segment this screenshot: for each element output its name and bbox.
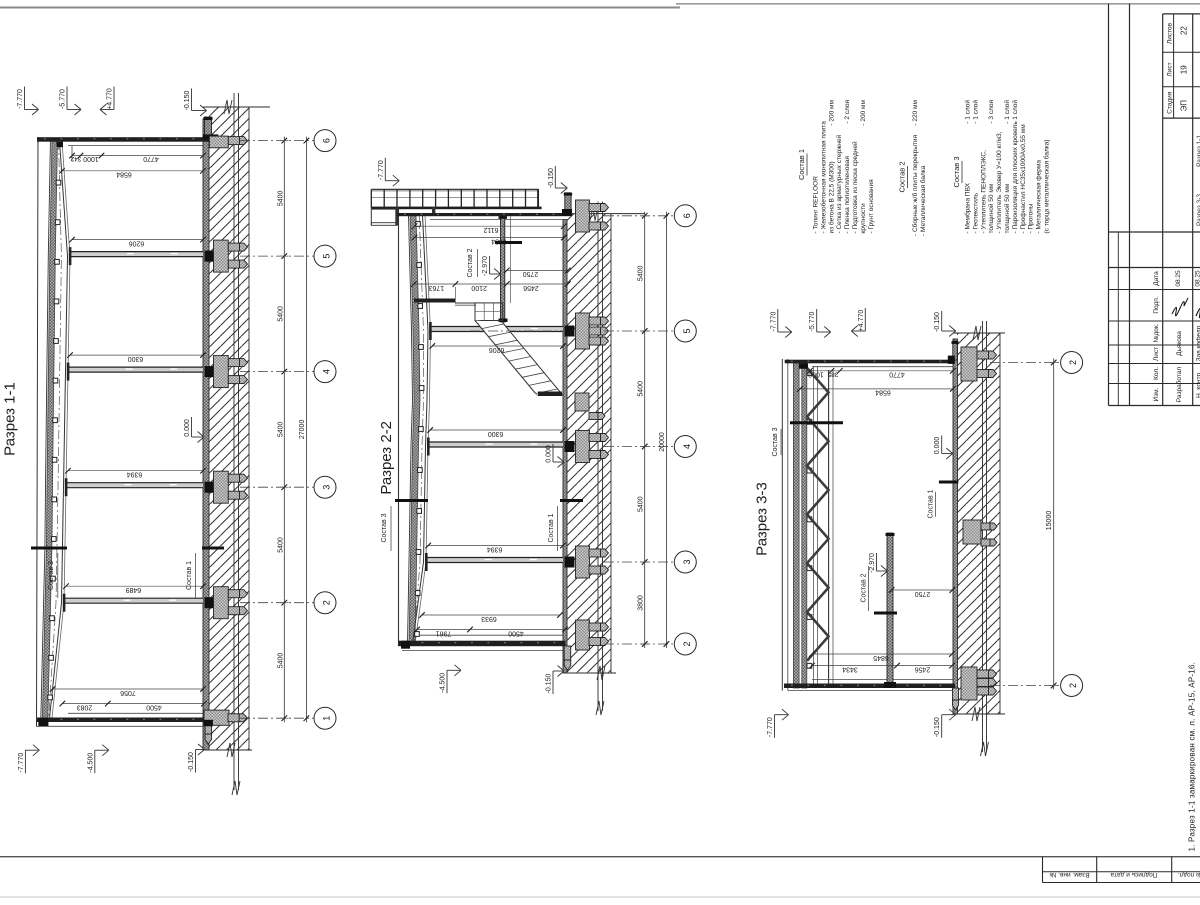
- svg-text:6: 6: [682, 213, 692, 218]
- svg-text:Состав 1: Состав 1: [797, 149, 806, 180]
- svg-text:7961: 7961: [436, 629, 452, 636]
- svg-text:Состав 1: Состав 1: [548, 513, 555, 542]
- svg-text:- Прогоны: - Прогоны: [1028, 203, 1035, 233]
- svg-text:-5.770: -5.770: [809, 311, 816, 331]
- svg-text:1763: 1763: [429, 284, 445, 291]
- svg-text:Инв. № подл.: Инв. № подл.: [1178, 871, 1200, 878]
- svg-text:2750: 2750: [915, 590, 931, 597]
- svg-text:4770: 4770: [143, 155, 159, 162]
- svg-text:Состав 3: Состав 3: [952, 156, 961, 187]
- svg-text:6489: 6489: [126, 586, 142, 593]
- svg-text:Подпись и дата: Подпись и дата: [1110, 871, 1157, 878]
- svg-text:- 1 слой: - 1 слой: [1011, 100, 1019, 124]
- svg-text:2456: 2456: [523, 284, 539, 291]
- svg-text:7056: 7056: [120, 689, 136, 696]
- svg-text:№док.: №док.: [1153, 323, 1160, 342]
- svg-text:5: 5: [322, 254, 332, 259]
- svg-text:08.25: 08.25: [1175, 270, 1182, 287]
- svg-text:5400: 5400: [638, 381, 645, 397]
- svg-text:- Сетка из арматурных стержней: - Сетка из арматурных стержней: [835, 134, 843, 233]
- svg-text:20000: 20000: [659, 432, 666, 452]
- svg-text:-7.770: -7.770: [17, 89, 24, 109]
- svg-text:3: 3: [322, 485, 332, 490]
- svg-text:Состав 1: Состав 1: [928, 489, 935, 518]
- svg-text:6584: 6584: [875, 389, 891, 396]
- svg-text:+4.770: +4.770: [107, 88, 114, 110]
- svg-text:Состав 1: Состав 1: [186, 561, 193, 590]
- svg-text:из бетона В 22,5 (М300): из бетона В 22,5 (М300): [827, 161, 835, 233]
- svg-text:0.000: 0.000: [184, 419, 191, 437]
- svg-text:- 3 слоя: - 3 слоя: [988, 100, 995, 124]
- svg-text:1000: 1000: [83, 155, 99, 162]
- svg-text:- 200 мм: - 200 мм: [860, 99, 867, 125]
- svg-text:0.000: 0.000: [546, 445, 553, 463]
- svg-text:Разрез 2-2: Разрез 2-2: [378, 421, 395, 495]
- svg-text:Зав.кафедр: Зав.кафедр: [1196, 325, 1200, 361]
- svg-text:5: 5: [682, 328, 692, 333]
- svg-text:Подп.: Подп.: [1153, 296, 1160, 313]
- svg-text:-7.770: -7.770: [18, 753, 25, 773]
- svg-text:-0.150: -0.150: [548, 168, 555, 188]
- svg-text:6: 6: [322, 138, 332, 143]
- svg-text:- Мембрана ПВХ: - Мембрана ПВХ: [964, 182, 972, 233]
- svg-text:Н. контр.: Н. контр.: [1196, 371, 1200, 398]
- svg-text:27000: 27000: [299, 420, 306, 440]
- svg-text:- 1 слой: - 1 слой: [964, 100, 972, 124]
- svg-text:Состав 2: Состав 2: [898, 161, 907, 192]
- svg-text:4770: 4770: [889, 371, 905, 378]
- svg-text:-0.150: -0.150: [546, 673, 553, 693]
- svg-text:- Топинг REFLOOR: - Топинг REFLOOR: [813, 176, 820, 234]
- svg-text:5400: 5400: [277, 422, 284, 438]
- svg-text:6300: 6300: [128, 355, 144, 362]
- svg-text:2: 2: [1068, 683, 1078, 688]
- svg-text:(с торца металлическая балка): (с торца металлическая балка): [1043, 139, 1051, 233]
- svg-text:Состав 3: Состав 3: [48, 561, 55, 590]
- svg-text:Состав 2: Состав 2: [467, 248, 474, 277]
- svg-text:+4.770: +4.770: [858, 310, 865, 332]
- svg-text:5400: 5400: [277, 537, 284, 553]
- svg-text:1. Разрез 1-1 замаркирован см.: 1. Разрез 1-1 замаркирован см. л. АР-15,…: [1188, 662, 1197, 852]
- svg-text:-4.500: -4.500: [87, 753, 94, 773]
- svg-text:- Сборные ж/б плиты перекрытия: - Сборные ж/б плиты перекрытия: [911, 135, 919, 236]
- svg-text:4: 4: [682, 444, 692, 449]
- svg-text:- Железобетонная монолитная пл: - Железобетонная монолитная плита: [819, 121, 827, 234]
- svg-text:6394: 6394: [127, 471, 143, 478]
- svg-text:-0.150: -0.150: [934, 312, 941, 332]
- svg-text:2: 2: [322, 600, 332, 605]
- svg-text:6206: 6206: [129, 240, 145, 247]
- svg-text:1: 1: [322, 716, 332, 721]
- svg-text:6300: 6300: [488, 430, 504, 437]
- svg-text:2100: 2100: [471, 284, 487, 291]
- svg-text:Состав 2: Состав 2: [861, 573, 868, 602]
- svg-text:Листов: Листов: [1167, 22, 1174, 44]
- svg-text:- 2 слоя: - 2 слоя: [844, 100, 851, 124]
- svg-text:5400: 5400: [638, 266, 645, 282]
- svg-text:- Металлическая ферма: - Металлическая ферма: [1036, 160, 1043, 234]
- svg-text:0.000: 0.000: [934, 437, 941, 455]
- svg-text:-5.770: -5.770: [60, 89, 67, 109]
- svg-text:15000: 15000: [1046, 511, 1053, 531]
- svg-text:6206: 6206: [489, 346, 505, 353]
- svg-text:-4.500: -4.500: [440, 673, 447, 693]
- svg-text:-2.970: -2.970: [482, 256, 489, 276]
- svg-text:крупности: крупности: [860, 203, 867, 234]
- svg-text:Состав 3: Состав 3: [381, 513, 388, 542]
- svg-text:6845: 6845: [873, 654, 889, 661]
- svg-text:Взам. инв. №: Взам. инв. №: [1049, 871, 1089, 878]
- svg-text:- Утеплитель ПЕНОПЛЭКС,: - Утеплитель ПЕНОПЛЭКС,: [980, 150, 987, 234]
- svg-text:2: 2: [682, 641, 692, 646]
- svg-text:-0.150: -0.150: [188, 752, 195, 772]
- svg-text:толщиной 50 мм: толщиной 50 мм: [1003, 183, 1011, 233]
- svg-text:- 1 слой: - 1 слой: [971, 100, 979, 124]
- svg-text:Дьякова: Дьякова: [1176, 331, 1183, 356]
- svg-text:-7.770: -7.770: [378, 160, 385, 180]
- svg-text:6584: 6584: [116, 170, 132, 177]
- svg-text:19: 19: [1180, 65, 1189, 74]
- svg-text:342: 342: [70, 155, 81, 162]
- svg-text:-2.970: -2.970: [869, 553, 876, 573]
- svg-text:- 200 мм: - 200 мм: [828, 99, 835, 125]
- svg-text:4500: 4500: [146, 704, 162, 711]
- svg-text:Изм.: Изм.: [1153, 387, 1160, 401]
- svg-text:Лист: Лист: [1153, 347, 1160, 361]
- svg-text:-7.770: -7.770: [767, 717, 774, 737]
- svg-text:Состав 3: Состав 3: [772, 427, 779, 456]
- svg-text:6112: 6112: [483, 226, 498, 233]
- svg-text:3434: 3434: [842, 665, 858, 672]
- svg-text:Разрез 3-3: Разрез 3-3: [754, 482, 771, 556]
- svg-text:Разработал: Разработал: [1175, 367, 1183, 403]
- svg-text:- Пароизоляция для плоских кро: - Пароизоляция для плоских кровель: [1012, 121, 1019, 234]
- svg-text:5400: 5400: [277, 191, 284, 207]
- svg-text:-0.150: -0.150: [184, 90, 191, 110]
- svg-text:- Грунт основания: - Грунт основания: [868, 179, 875, 234]
- svg-text:ЭП: ЭП: [1180, 100, 1189, 112]
- svg-text:385: 385: [827, 371, 838, 378]
- svg-text:Лист: Лист: [1167, 62, 1174, 76]
- svg-text:- Подготовка из песка средней: - Подготовка из песка средней: [851, 141, 859, 234]
- svg-text:2: 2: [1068, 360, 1078, 365]
- svg-text:Разрез 3-3: Разрез 3-3: [1196, 194, 1200, 226]
- svg-text:3800: 3800: [638, 595, 645, 611]
- svg-text:Стадия: Стадия: [1167, 91, 1174, 114]
- svg-text:2456: 2456: [915, 665, 931, 672]
- svg-text:Разрез 1-1,: Разрез 1-1,: [1196, 133, 1200, 167]
- svg-text:толщиной 50 мм: толщиной 50 мм: [987, 183, 995, 233]
- svg-text:Кол.: Кол.: [1153, 367, 1160, 380]
- svg-text:5400: 5400: [638, 496, 645, 512]
- svg-text:5400: 5400: [277, 306, 284, 322]
- svg-text:5400: 5400: [277, 653, 284, 669]
- svg-text:6933: 6933: [481, 615, 497, 622]
- svg-text:Дата: Дата: [1153, 271, 1160, 286]
- svg-text:- 220 мм: - 220 мм: [912, 99, 919, 125]
- svg-text:4: 4: [322, 369, 332, 374]
- svg-text:- 1 слой: - 1 слой: [1003, 100, 1011, 124]
- svg-text:-7.770: -7.770: [770, 311, 777, 331]
- svg-text:08.25: 08.25: [1195, 270, 1200, 287]
- svg-text:- Геотекстиль: - Геотекстиль: [972, 192, 979, 233]
- svg-text:22: 22: [1180, 26, 1189, 35]
- svg-text:- Утеплитель Эковер У=100 кг/м: - Утеплитель Эковер У=100 кг/м3,: [996, 131, 1003, 233]
- svg-text:- Профнастил НС35х1000Ах0,55 м: - Профнастил НС35х1000Ах0,55 мм: [1020, 124, 1027, 234]
- svg-text:Разрез 1-1: Разрез 1-1: [2, 382, 19, 456]
- svg-text:6394: 6394: [487, 545, 503, 552]
- svg-text:- Металлическая балка: - Металлическая балка: [919, 165, 927, 236]
- svg-text:1000: 1000: [808, 371, 824, 378]
- svg-text:- Пленка полиэтиленовая: - Пленка полиэтиленовая: [844, 156, 851, 234]
- svg-text:2083: 2083: [77, 704, 93, 711]
- svg-text:2750: 2750: [523, 270, 539, 277]
- svg-text:4500: 4500: [508, 629, 524, 636]
- svg-text:-0.150: -0.150: [934, 717, 941, 737]
- svg-text:3: 3: [682, 559, 692, 564]
